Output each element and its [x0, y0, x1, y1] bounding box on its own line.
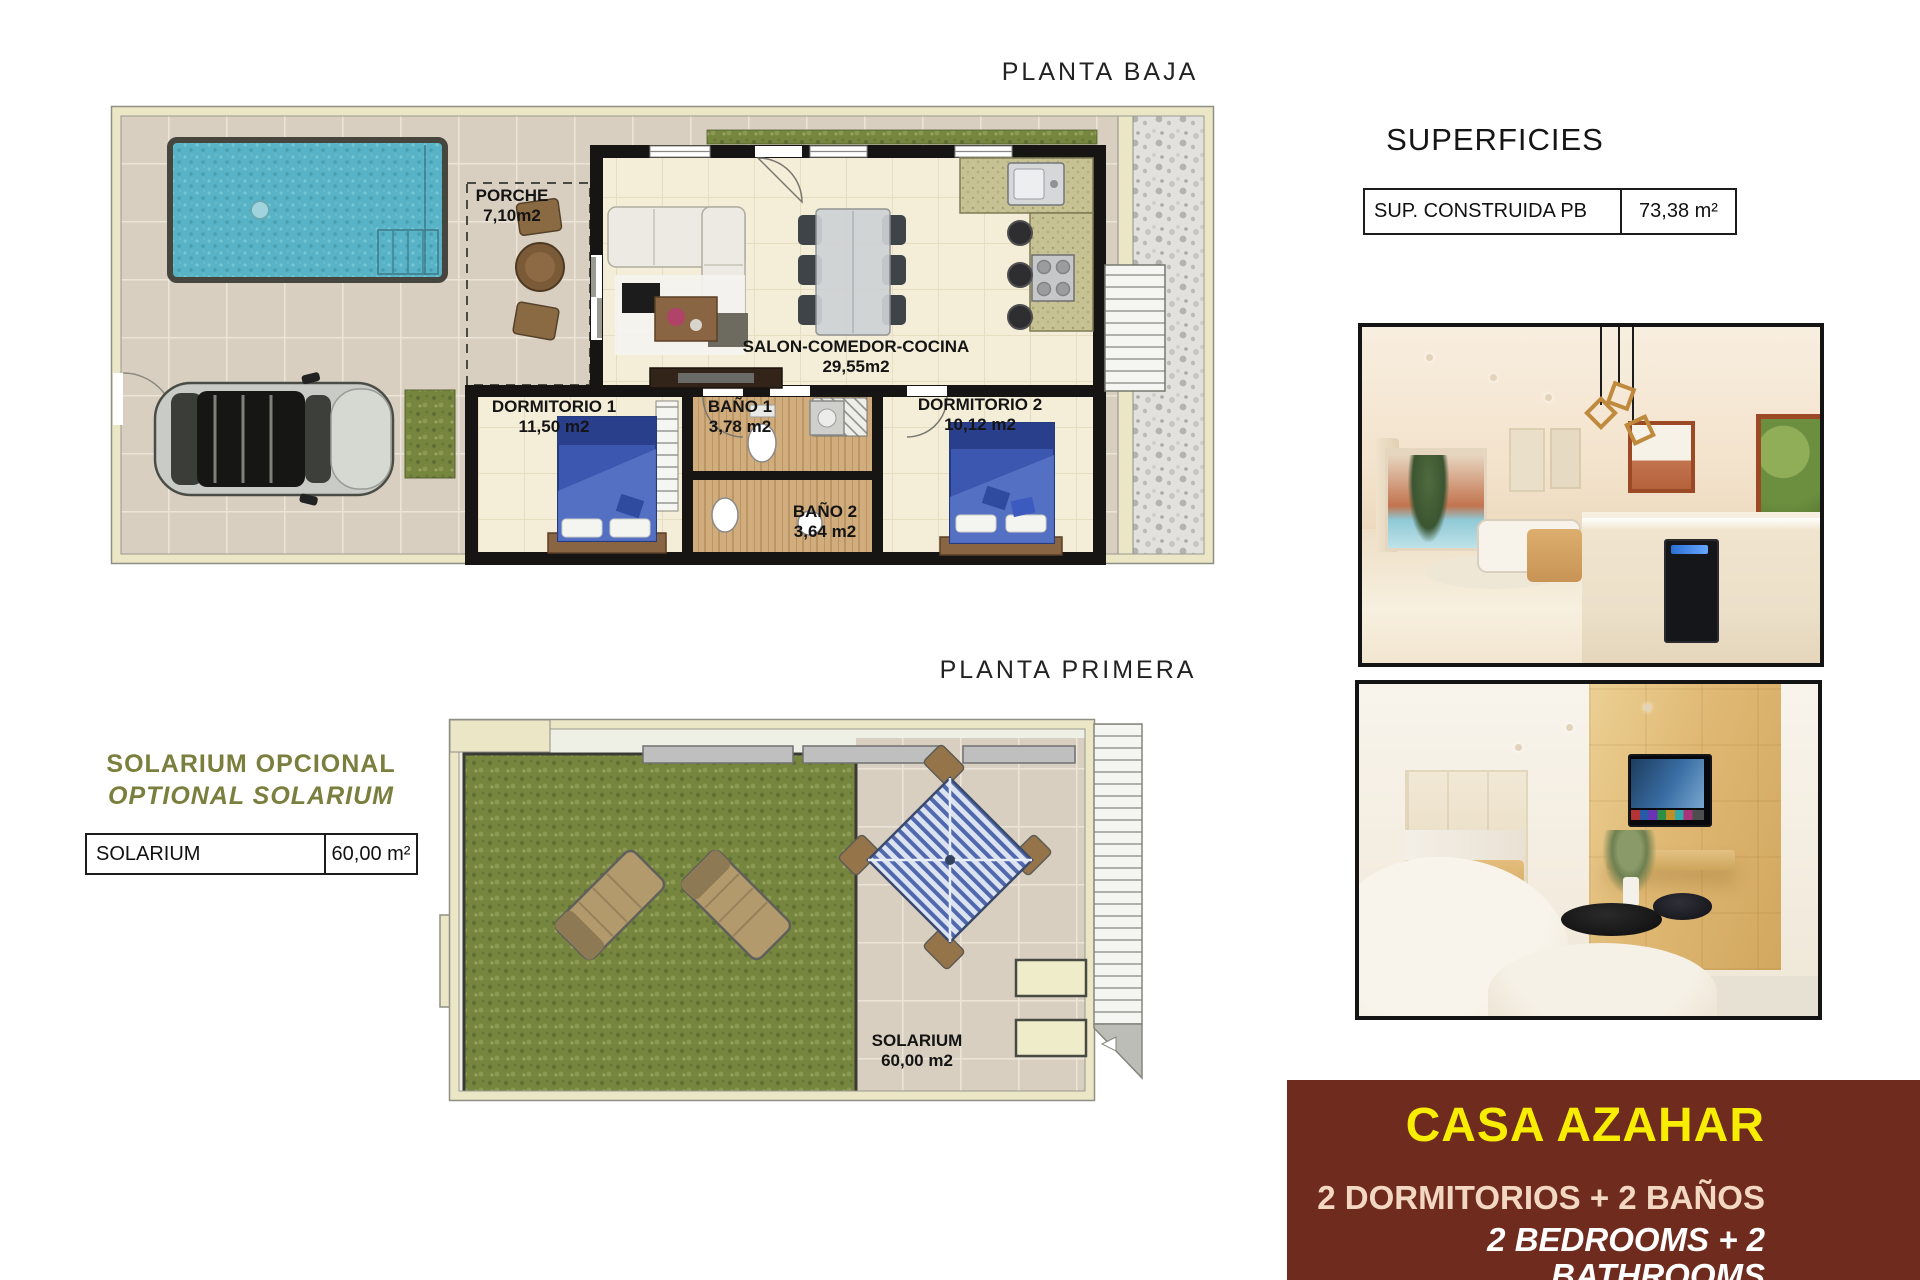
bed-dormitorio-1	[548, 417, 666, 553]
roof-garden	[464, 754, 856, 1096]
property-card: CASA AZAHAR 2 DORMITORIOS + 2 BAÑOS 2 BE…	[1287, 1080, 1920, 1280]
photo2-coffee-table	[1561, 903, 1662, 936]
superficies-table: SUP. CONSTRUIDA PB 73,38 m²	[1363, 188, 1737, 235]
wardrobe	[656, 401, 678, 511]
roof-step	[450, 720, 550, 752]
photo2-ceiling-spot	[1644, 704, 1651, 711]
solarium-table-label: SOLARIUM	[87, 835, 324, 873]
dining-set	[798, 209, 906, 335]
photo2-tv-screen	[1631, 759, 1704, 809]
planta-primera-plan	[438, 710, 1148, 1110]
photo1-right-window	[1756, 414, 1824, 518]
photo1-wall-art	[1509, 428, 1545, 492]
exterior-stairs	[1105, 265, 1165, 391]
coffee-table-rug	[615, 275, 748, 355]
room-label-bano-1: BAÑO 1 3,78 m2	[708, 397, 772, 437]
property-spec-es: 2 DORMITORIOS + 2 BAÑOS	[1297, 1180, 1765, 1216]
photo1-pendant-cord	[1632, 327, 1634, 423]
planter-bars	[643, 746, 1075, 763]
pool	[170, 140, 445, 280]
photo1-pendant-cord	[1600, 327, 1602, 405]
solarium-table-value: 60,00 m²	[324, 835, 416, 873]
photo2-side-table	[1653, 893, 1713, 920]
planta-baja-title: PLANTA BAJA	[1002, 58, 1199, 87]
car	[155, 372, 393, 506]
property-spec-en: 2 BEDROOMS + 2 BATHROOMS	[1297, 1222, 1765, 1280]
room-label-porche: PORCHE 7,10m2	[476, 186, 549, 226]
bed-dormitorio-2	[940, 423, 1062, 555]
photo2-marble-splashback	[1405, 830, 1524, 860]
brochure-page: PLANTA BAJA	[0, 0, 1920, 1280]
room-label-solarium: SOLARIUM 60,00 m2	[872, 1031, 963, 1071]
solarium-table: SOLARIUM 60,00 m²	[85, 833, 418, 875]
photo2-ceiling-spot	[1515, 744, 1522, 751]
solarium-heading-es: SOLARIUM OPCIONAL	[106, 748, 395, 780]
photo1-pendant-cord	[1618, 327, 1620, 383]
photo1-ceiling-spot	[1426, 354, 1433, 361]
photo1-wall-art-2	[1550, 428, 1581, 489]
photo1-dining-table	[1527, 529, 1582, 583]
superficies-row-value: 73,38 m²	[1620, 190, 1735, 233]
planter-hedge	[707, 130, 1097, 144]
property-name: CASA AZAHAR	[1297, 1100, 1765, 1152]
superficies-title: SUPERFICIES	[1386, 122, 1604, 158]
gate-opening	[113, 373, 123, 425]
photo1-plant	[1408, 455, 1449, 542]
roof-staircase	[1094, 724, 1142, 1078]
interior-photo-kitchen-living	[1358, 323, 1824, 667]
superficies-row-label: SUP. CONSTRUIDA PB	[1365, 190, 1620, 233]
room-label-dormitorio-2: DORMITORIO 2 10,12 m2	[918, 395, 1042, 435]
hedge-strip	[405, 390, 455, 478]
planta-baja-plan	[110, 105, 1215, 565]
room-label-salon: SALON-COMEDOR-COCINA 29,55m2	[743, 337, 970, 377]
photo2-tv-app-row	[1631, 810, 1704, 820]
photo2-ceiling-spot	[1566, 724, 1573, 731]
planta-primera-title: PLANTA PRIMERA	[940, 656, 1197, 685]
solarium-optional-heading: SOLARIUM OPCIONAL OPTIONAL SOLARIUM	[106, 748, 395, 812]
photo2-vase	[1623, 877, 1639, 907]
solarium-heading-en: OPTIONAL SOLARIUM	[106, 780, 395, 812]
photo1-oven-display	[1671, 545, 1708, 553]
interior-photo-living-tv	[1355, 680, 1822, 1020]
photo1-oven	[1664, 539, 1718, 644]
room-label-bano-2: BAÑO 2 3,64 m2	[793, 502, 857, 542]
room-label-dormitorio-1: DORMITORIO 1 11,50 m2	[492, 397, 616, 437]
